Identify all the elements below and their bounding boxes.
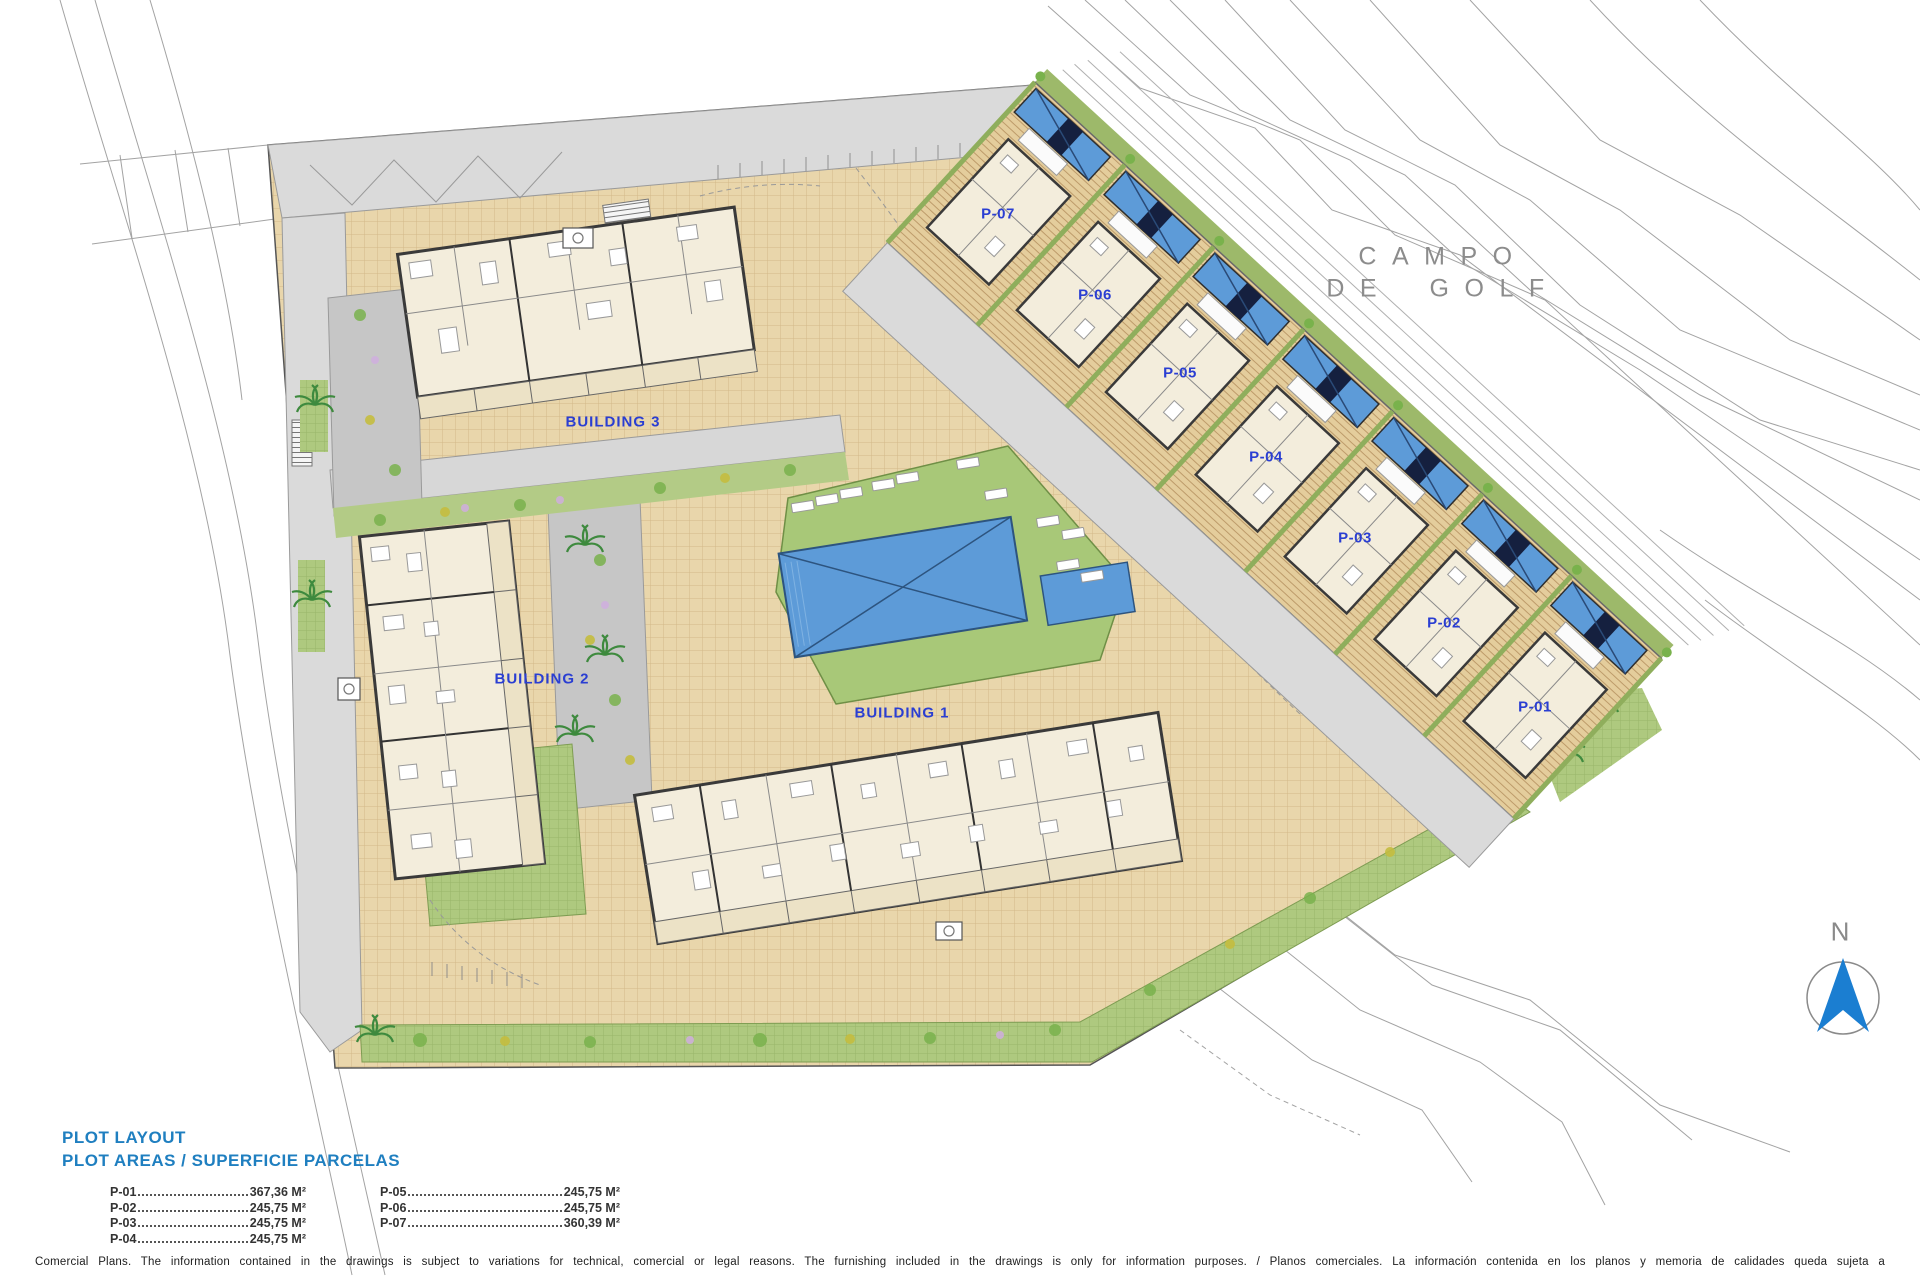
plot-label-p06: P-06 <box>1078 287 1112 304</box>
legend-column-1: P-01 367,36 M² P-02 245,75 M² P-03 245,7… <box>110 1185 306 1247</box>
plot-area-label: P-05 <box>380 1185 406 1199</box>
plot-area-value: 245,75 M² <box>250 1201 306 1215</box>
plot-area-value: 360,39 M² <box>564 1216 620 1230</box>
building-2-label: BUILDING 2 <box>494 671 589 688</box>
plot-area-value: 245,75 M² <box>564 1185 620 1199</box>
plot-area-label: P-06 <box>380 1201 406 1215</box>
plot-area-row: P-03 245,75 M² <box>110 1216 306 1232</box>
building-1-label: BUILDING 1 <box>854 705 949 722</box>
plot-label-p04: P-04 <box>1249 449 1283 466</box>
leader-dots <box>138 1225 247 1227</box>
leader-dots <box>408 1210 561 1212</box>
plot-area-label: P-03 <box>110 1216 136 1230</box>
north-label: N <box>1831 917 1850 948</box>
plot-area-label: P-01 <box>110 1185 136 1199</box>
leader-dots <box>408 1225 561 1227</box>
plot-area-label: P-02 <box>110 1201 136 1215</box>
plot-area-value: 245,75 M² <box>250 1216 306 1230</box>
disclaimer-text: Comercial Plans. The information contain… <box>35 1256 1885 1268</box>
north-arrow-icon <box>1807 958 1879 1034</box>
plot-area-label: P-07 <box>380 1216 406 1230</box>
legend-title: PLOT LAYOUT <box>62 1128 662 1148</box>
plot-area-value: 245,75 M² <box>250 1232 306 1246</box>
plot-label-p07: P-07 <box>981 206 1015 223</box>
leader-dots <box>408 1194 561 1196</box>
plot-label-p02: P-02 <box>1427 615 1461 632</box>
leader-dots <box>138 1194 247 1196</box>
plot-area-value: 367,36 M² <box>250 1185 306 1199</box>
plot-area-row: P-01 367,36 M² <box>110 1185 306 1201</box>
legend-subtitle: PLOT AREAS / SUPERFICIE PARCELAS <box>62 1151 662 1171</box>
golf-course-label-line1: CAMPO <box>1358 243 1527 272</box>
plot-legend: PLOT LAYOUT PLOT AREAS / SUPERFICIE PARC… <box>62 1128 662 1247</box>
building-3-label: BUILDING 3 <box>565 414 660 431</box>
site-plan-drawing <box>0 0 1920 1280</box>
plot-area-row: P-04 245,75 M² <box>110 1232 306 1248</box>
legend-column-2: P-05 245,75 M² P-06 245,75 M² P-07 360,3… <box>380 1185 620 1232</box>
plot-area-value: 245,75 M² <box>564 1201 620 1215</box>
site-plan-page: BUILDING 3 BUILDING 2 BUILDING 1 P-07 P-… <box>0 0 1920 1280</box>
leader-dots <box>138 1241 247 1243</box>
plot-label-p01: P-01 <box>1518 699 1552 716</box>
plot-label-p05: P-05 <box>1163 365 1197 382</box>
golf-course-label-line2: DE GOLF <box>1326 275 1559 304</box>
plot-area-row: P-02 245,75 M² <box>110 1201 306 1217</box>
plot-area-row: P-07 360,39 M² <box>380 1216 620 1232</box>
plot-area-row: P-05 245,75 M² <box>380 1185 620 1201</box>
leader-dots <box>138 1210 247 1212</box>
plot-label-p03: P-03 <box>1338 530 1372 547</box>
plot-area-row: P-06 245,75 M² <box>380 1201 620 1217</box>
plot-area-label: P-04 <box>110 1232 136 1246</box>
